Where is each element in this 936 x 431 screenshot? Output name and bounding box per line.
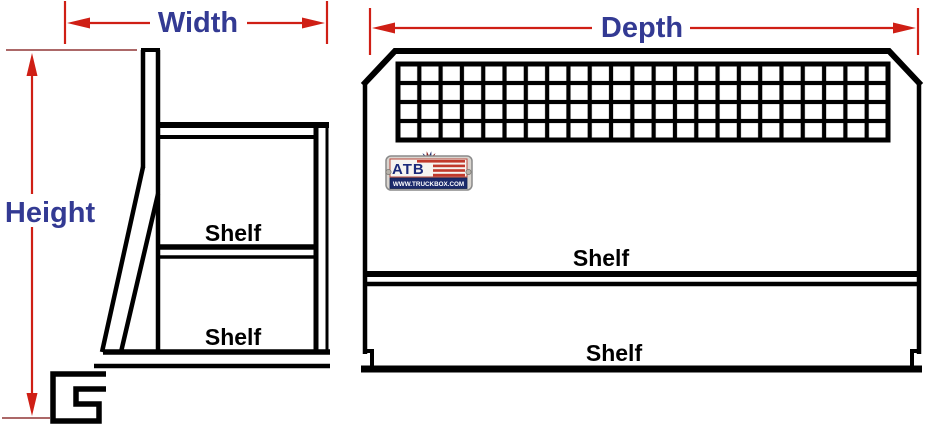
logo-website-text: WWW.TRUCKBOX.COM [393,181,464,188]
logo-screw-icon [386,169,391,174]
front-view-drawing: Shelf Shelf ATB WWW.TRUCKBOX.COM [361,51,922,369]
mesh-grid [398,64,888,140]
width-dimension: Width [65,1,327,44]
logo-stripe [433,165,465,168]
logo-stripe [433,169,465,172]
depth-dimension: Depth [370,8,918,55]
width-arrow-right-icon [302,18,325,29]
side-shelf-label-2: Shelf [205,324,262,350]
depth-label: Depth [601,12,683,44]
front-shelf-label-1: Shelf [573,245,630,271]
width-arrow-left-icon [67,18,90,29]
atb-logo: ATB WWW.TRUCKBOX.COM [386,151,472,190]
diagram-stage: Width Height Depth [0,0,936,431]
mount-foot-bracket [53,374,106,421]
side-shelf-label-1: Shelf [205,220,262,246]
height-arrow-up-icon [27,53,38,76]
mesh-grid-cells [398,64,888,140]
height-label: Height [5,197,96,229]
slant-inner-edge [121,194,158,352]
front-shelf-label-2: Shelf [586,340,643,366]
height-dimension: Height [2,50,137,418]
height-arrow-down-icon [27,393,38,416]
logo-brand-text: ATB [392,161,425,178]
depth-arrow-right-icon [893,23,916,34]
slant-outer-edge [102,167,143,352]
diagram-canvas: Width Height Depth [0,0,936,431]
depth-arrow-left-icon [372,23,395,34]
width-label: Width [158,7,238,39]
side-view-drawing: Shelf Shelf [53,50,330,421]
logo-screw-icon [466,169,471,174]
logo-stripe [433,174,465,177]
